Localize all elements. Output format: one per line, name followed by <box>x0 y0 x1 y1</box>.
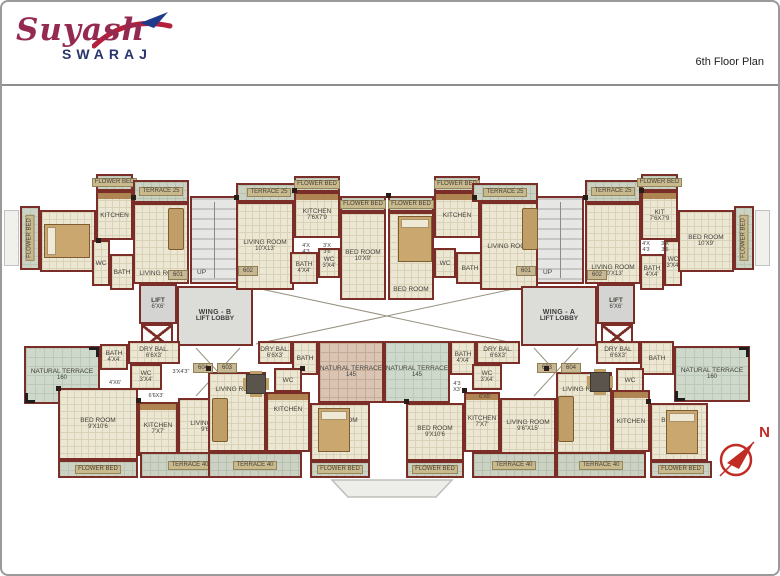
lift-wing-b-label: LIFT <box>151 297 165 304</box>
kitchen-603b: KITCHEN <box>266 392 310 452</box>
bed-furniture <box>318 408 350 452</box>
lift-lobby-wing-a-dims: LIFT LOBBY <box>540 316 578 323</box>
unit-tag-602a: 602 <box>587 270 607 280</box>
unit-tag-601b-label: 601 <box>173 272 183 279</box>
dry-balcony-603b-dims: 6'6X3' <box>267 353 283 360</box>
terrace-40-603b: TERRACE 40 <box>208 452 302 478</box>
lift-lobby-wing-a: WING - ALIFT LOBBY <box>521 286 597 346</box>
flower-bed-604a-label: FLOWER BED <box>658 465 704 474</box>
bed-furniture <box>666 410 698 454</box>
dry-balcony-603b: DRY BAL.6'6X3' <box>258 341 292 364</box>
unit-tag-603b-label: 603 <box>222 365 232 372</box>
balcony-slab <box>755 210 770 266</box>
wc-603a-label: WC <box>482 370 493 377</box>
bedroom-603a-dims: 9'X10'6 <box>425 432 445 439</box>
kitchen-601a-label: KITCHEN <box>443 212 472 219</box>
bath-602a-label: BATH <box>644 265 661 272</box>
flower-bed-603b-label: FLOWER BED <box>317 465 363 474</box>
staircase-wing-a-label: UP <box>543 269 552 276</box>
kitchen-603a-label: KITCHEN <box>468 415 497 422</box>
dry-balcony-604a: DRY BAL6'6X3' <box>596 341 640 364</box>
bath-604a-label: BATH <box>649 355 666 362</box>
compass-needle-icon <box>714 434 762 484</box>
natural-terrace-160-b-dims: 160 <box>57 375 67 382</box>
sofa-furniture <box>522 208 538 250</box>
kitchen-602a-dims: 7'6X7'9 <box>650 216 670 223</box>
column <box>234 195 239 200</box>
passage-dim-label: 6'6X3' <box>149 393 164 399</box>
flower-bed-602a-label: FLOWER BED <box>637 178 683 187</box>
flower-bed-603a: FLOWER BED <box>406 461 464 478</box>
passage-dim: 4'X4'3 <box>636 238 656 256</box>
terrace-40-604a-label: TERRACE 40 <box>579 461 622 470</box>
staircase-wing-a: UP <box>536 196 584 284</box>
bedroom-602a: BED ROOM10'X9' <box>678 210 734 272</box>
column <box>292 188 297 193</box>
wc-604b-dims: 3'X4' <box>140 377 153 384</box>
flower-bed-west-label: FLOWER BED <box>26 215 35 261</box>
dry-balcony-604b-dims: 6'6X3' <box>146 353 162 360</box>
flower-bed-602b-bedroom-label: FLOWER BED <box>340 200 386 209</box>
bath-601a-label: BATH <box>462 265 479 272</box>
kitchen-604b-dims: 7'X7' <box>152 429 165 436</box>
unit-tag-602b-label: 602 <box>243 268 253 275</box>
staircase-wing-b-label: UP <box>197 269 206 276</box>
flower-bed-east-label: FLOWER BED <box>740 215 749 261</box>
column <box>646 399 651 404</box>
bath-601b: BATH <box>110 254 134 290</box>
passage-dim-dims: 4'3 <box>302 249 309 255</box>
balcony-slab <box>4 210 19 266</box>
kitchen-602b: KITCHEN7'6X7'9 <box>294 192 340 238</box>
flower-bed-602b-bedroom: FLOWER BED <box>340 196 386 212</box>
passage-dim: 3'X4'3" <box>162 366 200 377</box>
kitchen-601b-label: KITCHEN <box>100 212 129 219</box>
floor-plan-title: 6th Floor Plan <box>696 56 764 68</box>
unit-tag-602b: 602 <box>238 266 258 276</box>
wc-603a-dims: 3'X4' <box>481 377 494 384</box>
passage-dim-dims: 4'3 <box>642 247 649 253</box>
living-room-603a: LIVING ROOM9'6"X15' <box>500 398 556 454</box>
living-room-603a-dims: 9'6"X15' <box>517 426 539 433</box>
passage-dim-label: 3'X4'3" <box>173 369 190 375</box>
bath-601b-label: BATH <box>114 269 131 276</box>
passage-dim: 4'X4'3 <box>296 240 316 258</box>
kitchen-602b-dims: 7'6X7'9 <box>307 215 327 222</box>
kitchen-604a-label: KITCHEN <box>617 418 646 425</box>
bath-603a-dims: 4'X4' <box>457 358 470 365</box>
flower-bed-604b: FLOWER BED <box>58 460 138 478</box>
natural-terrace-145-a-label: NATURAL TERRACE <box>386 365 448 372</box>
wc-604b-label: WC <box>141 370 152 377</box>
bedroom-603a: BED ROOM9'X10'6 <box>406 403 464 461</box>
terrace-25-601b-label: TERRACE 25 <box>139 187 182 196</box>
column <box>462 388 467 393</box>
flower-bed-602b-kitchen: FLOWER BED <box>294 176 340 192</box>
living-room-602b: LIVING ROOM10'X13' <box>236 202 294 290</box>
flower-bed-601a-bedroom-label: FLOWER BED <box>388 200 434 209</box>
unit-tag-601a: 601 <box>516 266 536 276</box>
floor-plan-canvas: FLOWER BEDBED ROOMFLOWER BEDKITCHENTERRA… <box>0 0 780 576</box>
wc-603b: WC <box>274 368 302 392</box>
dry-balcony-604b: DRY BAL.6'6X3' <box>128 341 180 364</box>
terrace-40-603b-label: TERRACE 40 <box>233 461 276 470</box>
bedroom-604b-dims: 9'X10'6 <box>88 424 108 431</box>
dry-balcony-603a-dims: 6'6X3' <box>490 353 506 360</box>
passage-dim-dims: X3' <box>453 387 461 393</box>
flower-bed-west: FLOWER BED <box>20 206 40 270</box>
lift-lobby-wing-b: WING - BLIFT LOBBY <box>177 286 253 346</box>
wc-601b: WC <box>92 240 110 286</box>
unit-tag-601a-label: 601 <box>521 268 531 275</box>
unit-tag-603b: 603 <box>217 363 237 373</box>
kitchen-602a: KIT7'6X7'9 <box>641 191 678 240</box>
bath-604b-label: BATH <box>106 350 123 357</box>
column <box>544 366 549 371</box>
column <box>206 366 211 371</box>
passage-dim: 4'X6' <box>100 377 130 388</box>
bed-furniture <box>44 224 90 258</box>
terrace-40-603a-label: TERRACE 40 <box>492 461 535 470</box>
bedroom-604b-label: BED ROOM <box>80 417 115 424</box>
kitchen-604b-label: KITCHEN <box>144 422 173 429</box>
dry-balcony-604a-label: DRY BAL <box>604 346 632 353</box>
lift-lobby-wing-b-dims: LIFT LOBBY <box>196 316 234 323</box>
kitchen-603a-dims: 7'X7' <box>476 422 489 429</box>
bath-604b: BATH4'X4' <box>100 344 128 370</box>
living-room-602b-dims: 10'X13' <box>255 246 275 253</box>
wc-604a: WC <box>616 368 644 392</box>
lift-wing-b: LIFT6'X6' <box>139 284 177 324</box>
column <box>56 386 61 391</box>
wc-602a-label: WC <box>668 256 679 263</box>
kitchen-602a-label: KIT <box>654 209 664 216</box>
bedroom-602b-dims: 10'X9' <box>355 256 371 263</box>
logo-primary-text: Suyash <box>16 12 145 48</box>
wc-603b-label: WC <box>283 377 294 384</box>
passage-dim-dims: 3'6 <box>661 247 668 253</box>
terrace-40-604a: TERRACE 40 <box>556 452 646 478</box>
unit-tag-602a-label: 602 <box>592 272 602 279</box>
natural-terrace-145-b-label: NATURAL TERRACE <box>320 365 382 372</box>
lift-wing-a: LIFT6'X6' <box>597 284 635 324</box>
bath-602b-label: BATH <box>296 261 313 268</box>
natural-terrace-160-a-label: NATURAL TERRACE <box>681 367 743 374</box>
dining-table-furniture <box>246 374 266 394</box>
wc-601a: WC <box>434 248 456 278</box>
sofa-furniture <box>212 398 228 442</box>
passage-dim: 6'6X3' <box>136 390 176 401</box>
flower-bed-604a: FLOWER BED <box>650 461 712 478</box>
bedroom-604b: BED ROOM9'X10'6 <box>58 388 138 460</box>
flower-bed-601a-bedroom: FLOWER BED <box>388 196 434 212</box>
bedroom-602a-dims: 10'X9' <box>698 241 714 248</box>
bedroom-602b: BED ROOM10'X9' <box>340 212 386 300</box>
natural-terrace-160-a: NATURAL TERRACE160 <box>674 346 750 402</box>
passage-dim: 3'X3'6 <box>318 240 336 258</box>
compass-rose: N <box>714 424 772 486</box>
dry-balcony-604b-label: DRY BAL. <box>139 346 168 353</box>
column <box>583 195 588 200</box>
bath-604a: BATH <box>640 341 674 375</box>
staircase-wing-b: UP <box>190 196 238 284</box>
passage-dim-label: 4'X6' <box>109 380 121 386</box>
natural-terrace-145-b: NATURAL TERRACE145 <box>318 341 384 403</box>
terrace-40-603a: TERRACE 40 <box>472 452 556 478</box>
bedroom-602a-label: BED ROOM <box>688 234 723 241</box>
bath-602a: BATH4'X4' <box>640 254 664 290</box>
kitchen-601b: KITCHEN <box>96 191 133 240</box>
bed-furniture <box>398 216 432 262</box>
column <box>131 195 136 200</box>
bath-602b-dims: 4'X4' <box>298 268 311 275</box>
logo-secondary-text: SWARAJ <box>62 46 152 62</box>
natural-terrace-145-b-dims: 145 <box>346 372 356 379</box>
sofa-furniture <box>168 208 184 250</box>
dry-balcony-603a: DRY BAL.6'6X3' <box>476 341 520 364</box>
terrace-25-602a: TERRACE 25 <box>585 180 641 203</box>
unit-tag-601b: 601 <box>168 270 188 280</box>
unit-tag-604a-label: 604 <box>566 365 576 372</box>
kitchen-602b-label: KITCHEN <box>303 208 332 215</box>
bath-604b-dims: 4'X4' <box>108 357 121 364</box>
passage-dim: 3'X3'6 <box>656 238 674 256</box>
passage-dim: 6'X5' <box>470 391 500 402</box>
dining-table-furniture <box>590 372 610 392</box>
wc-604a-label: WC <box>625 377 636 384</box>
flower-bed-603b: FLOWER BED <box>310 461 370 478</box>
passage-dim-dims: 3'6 <box>323 249 330 255</box>
bath-603a-label: BATH <box>455 351 472 358</box>
flower-bed-604b-label: FLOWER BED <box>75 465 121 474</box>
terrace-25-601a-label: TERRACE 25 <box>483 188 526 197</box>
flower-bed-601b-label: FLOWER BED <box>92 178 138 187</box>
terrace-25-602a-label: TERRACE 25 <box>591 187 634 196</box>
lift-wing-a-dims: 6'X6' <box>610 304 623 311</box>
passage-dim-label: 6'X5' <box>479 394 491 400</box>
natural-terrace-145-a-dims: 145 <box>412 372 422 379</box>
passage-dim: 4'3X3' <box>446 378 468 396</box>
bath-603b-label: BATH <box>297 355 314 362</box>
kitchen-603b-label: KITCHEN <box>274 406 303 413</box>
bedroom-603a-label: BED ROOM <box>417 425 452 432</box>
flower-bed-east: FLOWER BED <box>734 206 754 270</box>
column <box>639 188 644 193</box>
column <box>404 399 409 404</box>
wc-603a: WC3'X4' <box>472 364 502 390</box>
column <box>96 238 101 243</box>
terrace-40-604b-label: TERRACE 40 <box>168 461 211 470</box>
dry-balcony-604a-dims: 6'6X3' <box>610 353 626 360</box>
terrace-25-601a: TERRACE 25 <box>472 183 538 202</box>
flower-bed-602a: FLOWER BED <box>641 174 678 191</box>
dry-balcony-603b-label: DRY BAL. <box>260 346 289 353</box>
lift-wing-a-label: LIFT <box>609 297 623 304</box>
column <box>386 193 391 198</box>
wc-602b-dims: 3'X4' <box>323 263 336 270</box>
natural-terrace-145-a: NATURAL TERRACE145 <box>384 341 450 403</box>
dry-balcony-603a-label: DRY BAL. <box>483 346 512 353</box>
sofa-furniture <box>558 396 574 442</box>
bedroom-601a-label: BED ROOM <box>393 286 428 293</box>
column <box>136 398 141 403</box>
unit-tag-604a: 604 <box>561 363 581 373</box>
bath-602a-dims: 4'X4' <box>646 272 659 279</box>
flower-bed-603a-label: FLOWER BED <box>412 465 458 474</box>
column <box>300 366 305 371</box>
living-room-602b-label: LIVING ROOM <box>243 239 286 246</box>
terrace-25-602b-label: TERRACE 25 <box>247 188 290 197</box>
flower-bed-602b-kitchen-label: FLOWER BED <box>294 180 340 189</box>
natural-terrace-160-b-label: NATURAL TERRACE <box>31 368 93 375</box>
kitchen-604a: KITCHEN <box>612 390 650 452</box>
bedroom-602b-label: BED ROOM <box>345 249 380 256</box>
flower-bed-601b: FLOWER BED <box>96 174 133 191</box>
header-divider <box>0 84 780 86</box>
lift-wing-b-dims: 6'X6' <box>152 304 165 311</box>
wc-601a-label: WC <box>440 260 451 267</box>
column <box>472 195 477 200</box>
wc-604b: WC3'X4' <box>130 364 162 390</box>
kitchen-604b: KITCHEN7'X7' <box>138 402 178 456</box>
wc-601b-label: WC <box>96 260 107 267</box>
living-room-603a-label: LIVING ROOM <box>506 419 549 426</box>
natural-terrace-160-a-dims: 160 <box>707 374 717 381</box>
terrace-25-601b: TERRACE 25 <box>133 180 189 203</box>
